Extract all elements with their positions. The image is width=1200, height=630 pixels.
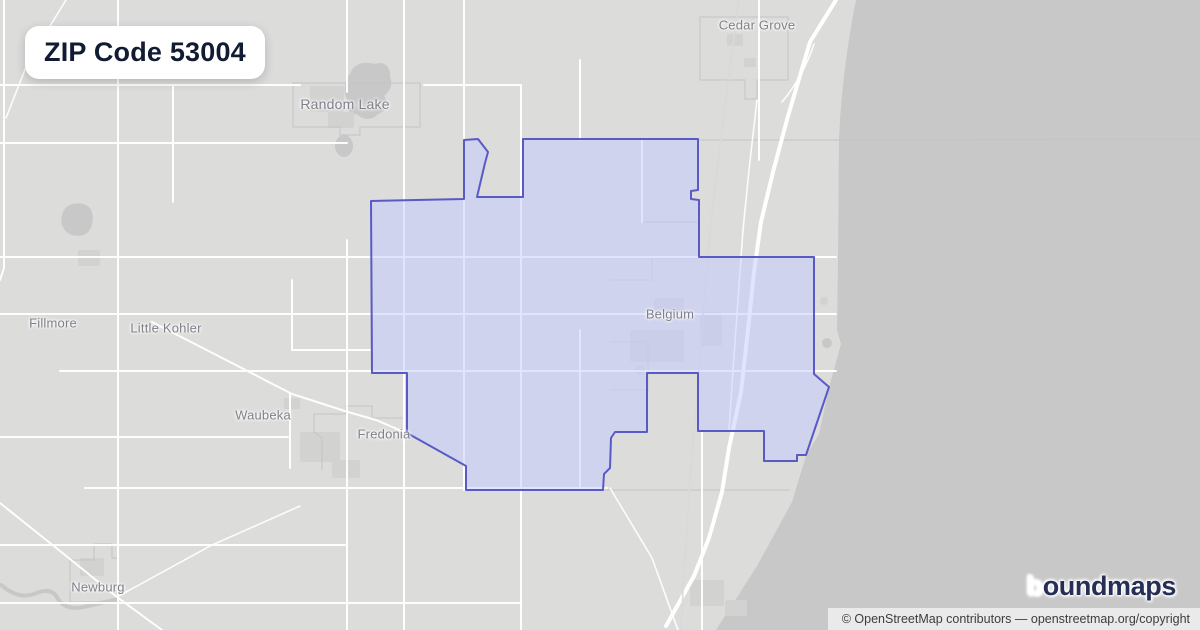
osm-attribution[interactable]: © OpenStreetMap contributors — openstree…	[828, 608, 1200, 630]
logo-b-icon: b	[1027, 571, 1043, 601]
fillmore-pond	[61, 203, 92, 235]
page-title: ZIP Code 53004	[44, 37, 246, 67]
map-canvas[interactable]: Cedar Grove Random Lake Fillmore Little …	[0, 0, 1200, 630]
shore-pond	[822, 338, 832, 348]
random-lake-south-pond	[335, 135, 353, 157]
logo-wordmark: oundmaps	[1043, 571, 1176, 601]
map-card: Cedar Grove Random Lake Fillmore Little …	[0, 0, 1200, 630]
map-graphics	[0, 0, 1200, 630]
boundmaps-logo: boundmaps	[1027, 571, 1176, 602]
zip-title-badge: ZIP Code 53004	[25, 26, 265, 79]
